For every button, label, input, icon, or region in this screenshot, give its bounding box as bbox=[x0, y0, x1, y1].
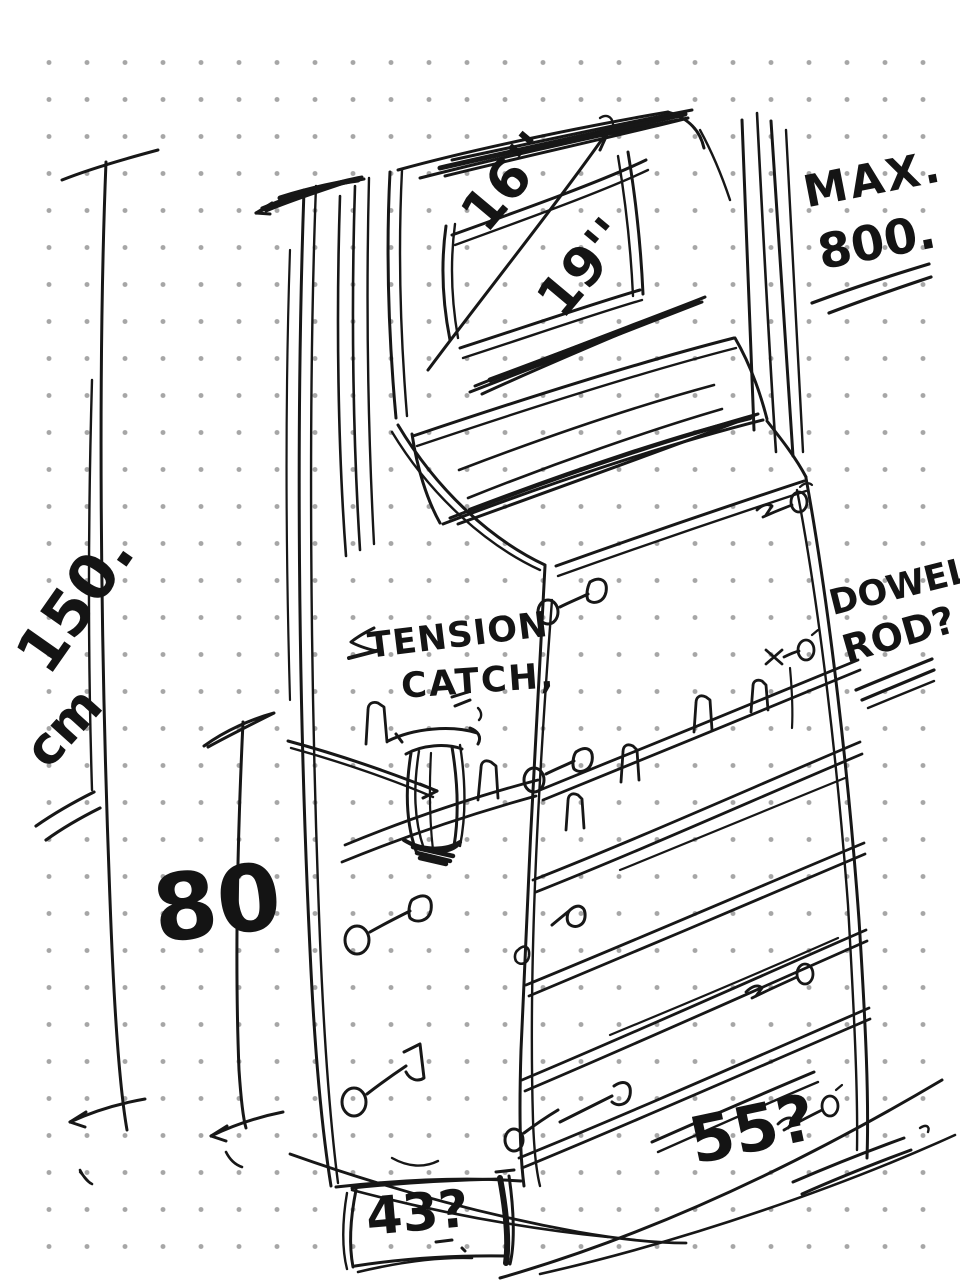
tension-catch-drawing bbox=[388, 728, 480, 864]
cabinet-left-face bbox=[256, 177, 364, 1186]
base-query-label: 43? bbox=[364, 1183, 471, 1244]
dowel-edge-markers bbox=[746, 483, 842, 1130]
cabinet-head bbox=[338, 110, 803, 570]
keyboard-shelf bbox=[412, 338, 806, 524]
sketch-page: { "canvas": { "background_color": "#ffff… bbox=[0, 0, 960, 1280]
dimension-line-150cm bbox=[62, 150, 158, 1184]
body-height-label: 80 bbox=[148, 850, 286, 957]
base-plinth bbox=[290, 1154, 686, 1272]
